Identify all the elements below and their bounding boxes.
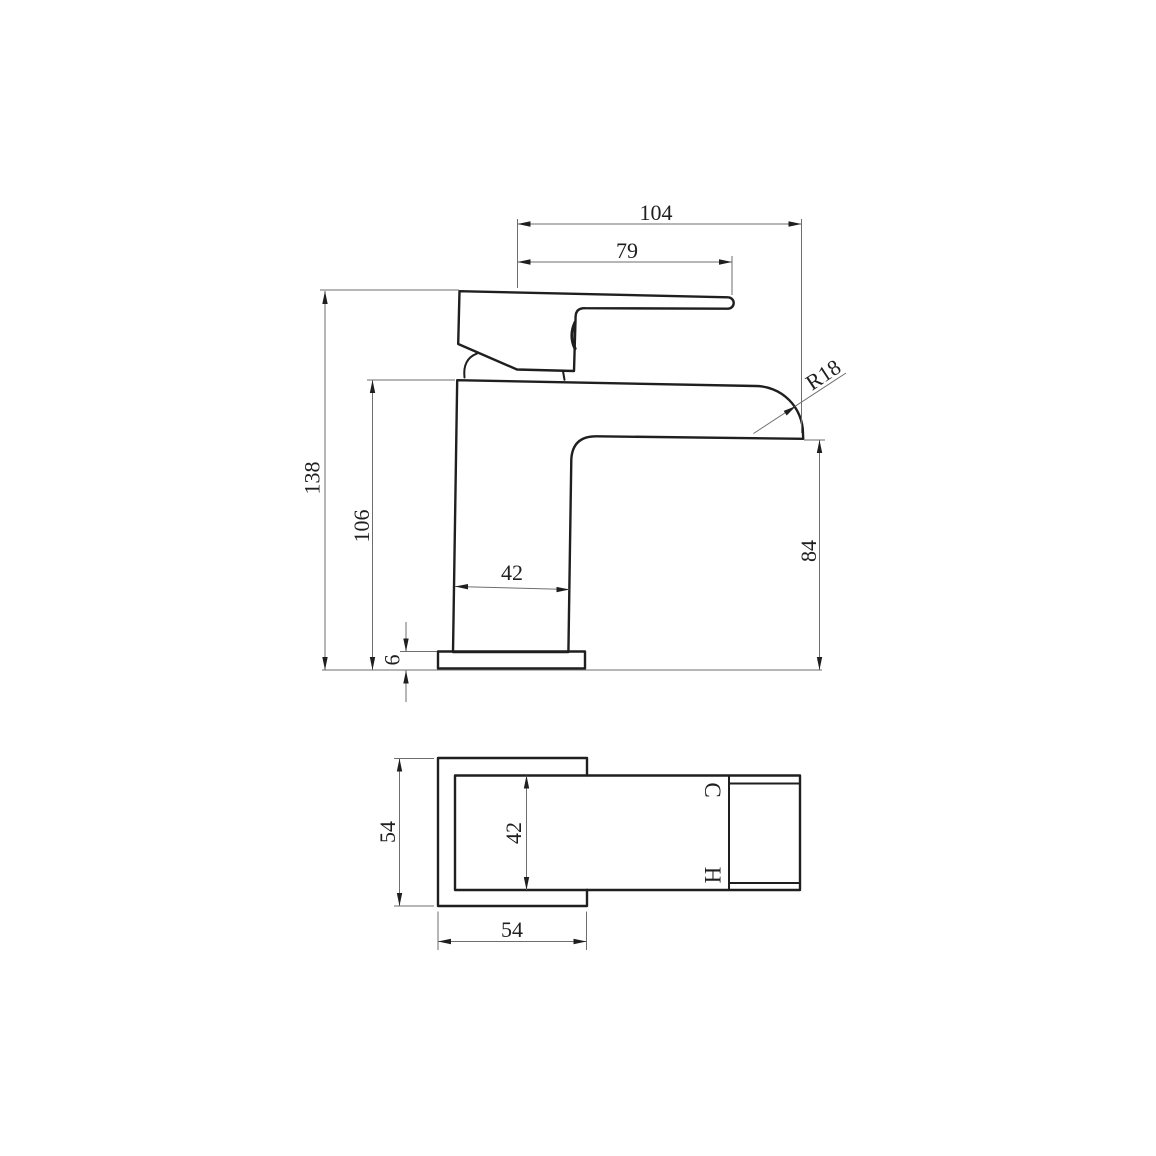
dim-42-side-arrow-left bbox=[455, 584, 468, 589]
dim-104-label: 104 bbox=[640, 200, 673, 225]
dim-54-left-arrow-top bbox=[397, 759, 402, 772]
dim-6-arrow-down bbox=[403, 639, 408, 652]
dim-138-arrow-bottom bbox=[322, 657, 327, 670]
dim-42-plan-arrow-bottom bbox=[524, 877, 529, 890]
body-spout-outline bbox=[453, 380, 803, 652]
plan-view: C H 54 42 54 bbox=[375, 758, 800, 950]
dim-138-arrow-top bbox=[322, 291, 327, 304]
dim-54-bottom-arrow-left bbox=[438, 939, 451, 944]
dim-106-arrow-bottom bbox=[370, 657, 375, 670]
dim-42-plan-arrow-top bbox=[524, 776, 529, 789]
dim-104-arrow-right bbox=[789, 221, 802, 226]
dim-138-label: 138 bbox=[300, 462, 325, 495]
base-plate bbox=[438, 652, 585, 669]
dim-79-arrow-left bbox=[518, 259, 531, 264]
dim-54-bottom-label: 54 bbox=[501, 917, 523, 942]
dim-6-label: 6 bbox=[380, 655, 405, 666]
technical-drawing-page: 104 79 138 106 42 bbox=[0, 0, 1156, 1156]
dim-42-side-line bbox=[455, 587, 570, 590]
dim-54-bottom-arrow-right bbox=[574, 939, 587, 944]
dim-84-arrow-bottom bbox=[817, 657, 822, 670]
faucet-technical-drawing: 104 79 138 106 42 bbox=[0, 0, 1156, 1156]
dim-104-arrow-left bbox=[518, 221, 531, 226]
dim-r18-arrow bbox=[784, 406, 796, 416]
dim-54-left-arrow-bottom bbox=[397, 893, 402, 906]
neck-arc bbox=[464, 354, 477, 378]
dim-54-left-label: 54 bbox=[375, 821, 400, 843]
dim-42-side-arrow-right bbox=[557, 587, 570, 592]
dim-r18-label: R18 bbox=[801, 354, 845, 395]
dim-84-label: 84 bbox=[796, 540, 821, 562]
dim-42-plan-label: 42 bbox=[501, 822, 526, 844]
dim-84-arrow-top bbox=[817, 440, 822, 453]
side-view: 104 79 138 106 42 bbox=[300, 200, 847, 702]
hot-indicator-label: H bbox=[700, 867, 725, 884]
dim-106-label: 106 bbox=[349, 510, 374, 543]
dim-79-arrow-right bbox=[719, 259, 732, 264]
neck-right-edge bbox=[563, 371, 565, 380]
dim-42-side-label: 42 bbox=[501, 560, 523, 585]
handle-lever-outline bbox=[458, 291, 734, 371]
cold-indicator-label: C bbox=[700, 782, 725, 797]
dim-79-label: 79 bbox=[616, 238, 638, 263]
dim-6-arrow-up bbox=[403, 671, 408, 684]
dim-106-arrow-top bbox=[370, 380, 375, 393]
